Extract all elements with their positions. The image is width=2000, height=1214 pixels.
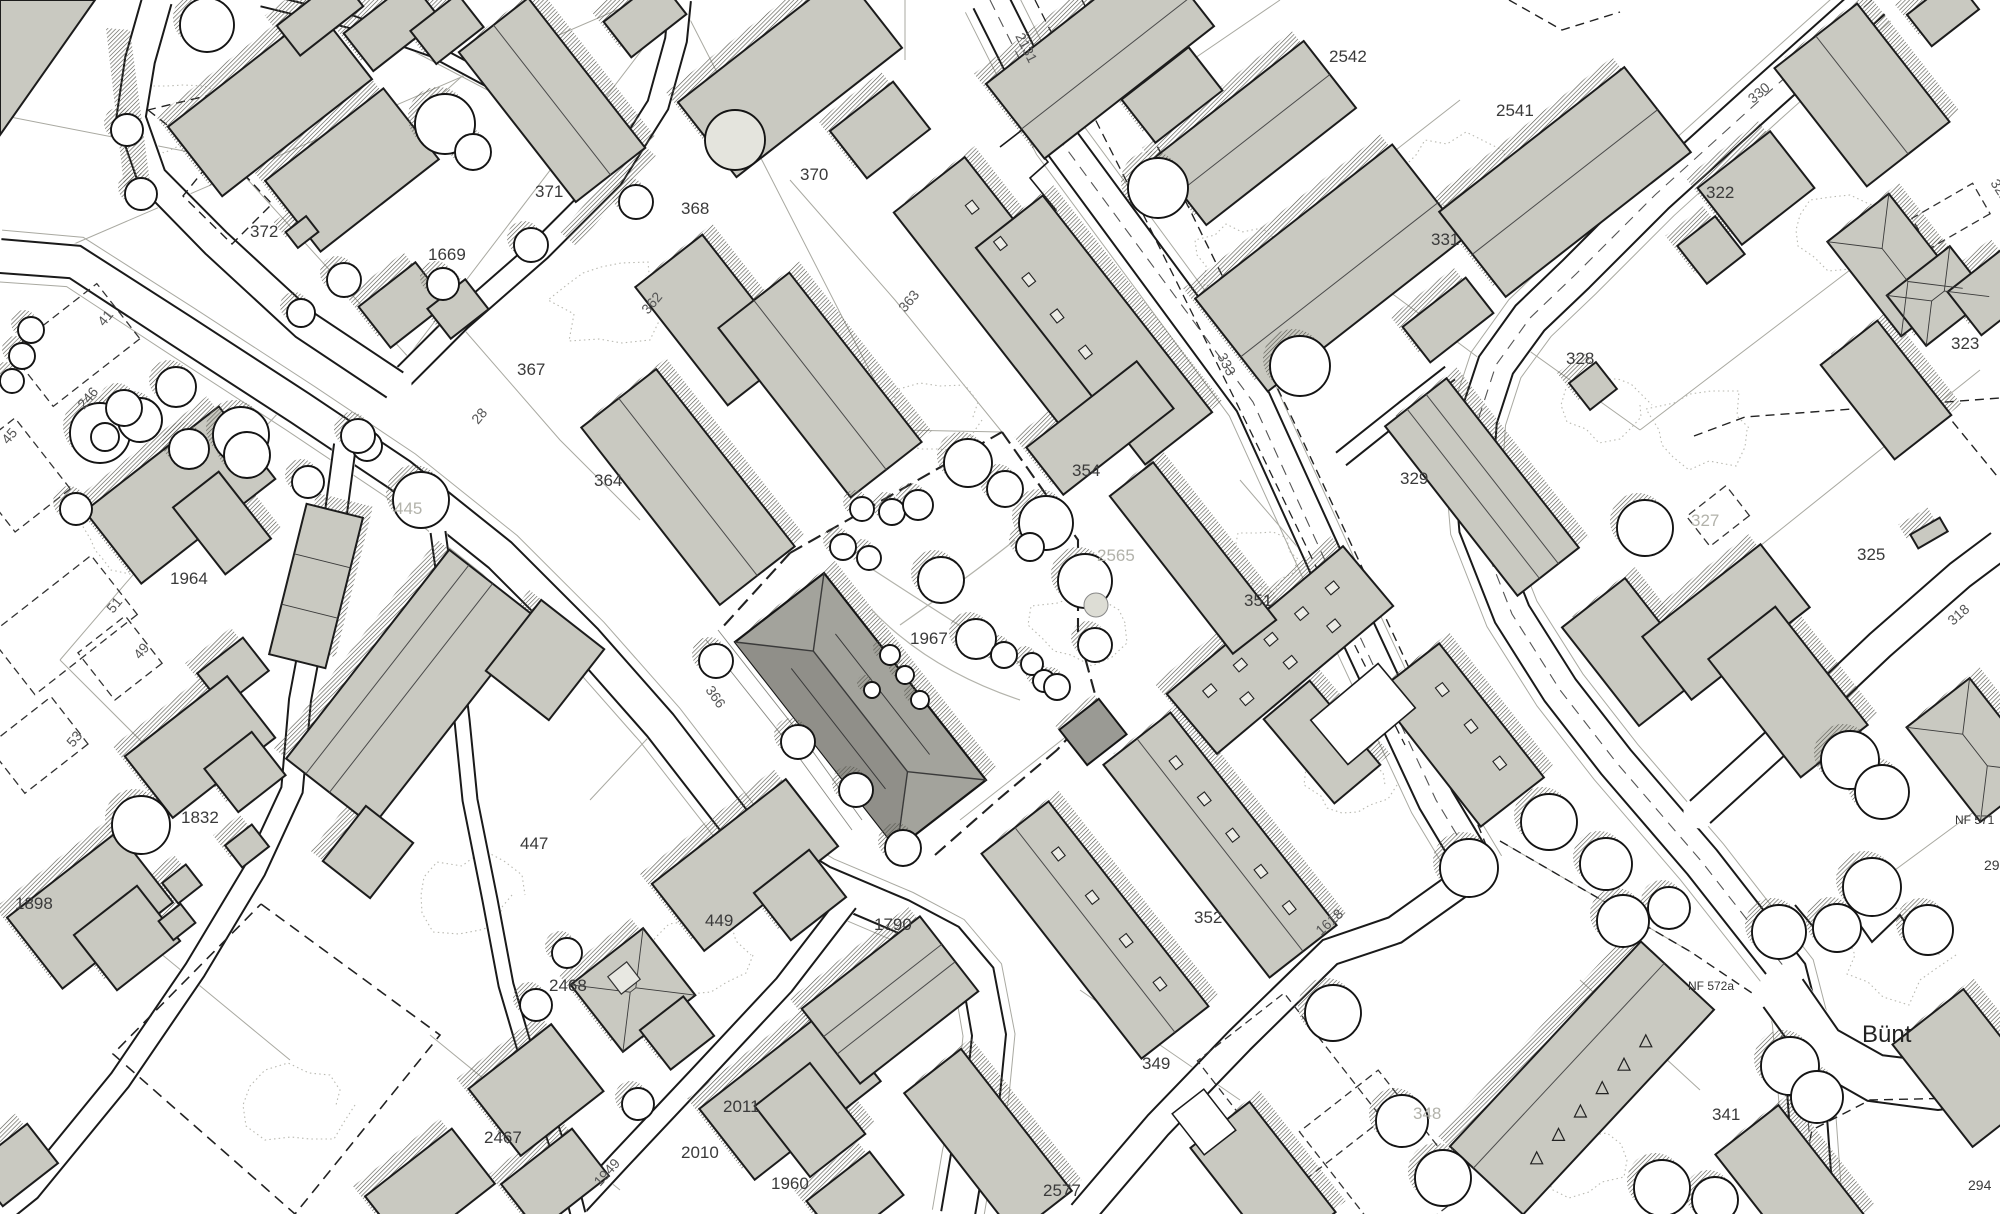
svg-text:1960: 1960 bbox=[771, 1174, 809, 1193]
svg-text:1790: 1790 bbox=[874, 915, 912, 934]
svg-text:354: 354 bbox=[1072, 461, 1100, 480]
svg-text:449: 449 bbox=[705, 911, 733, 930]
svg-text:447: 447 bbox=[520, 834, 548, 853]
svg-text:351: 351 bbox=[1244, 591, 1272, 610]
svg-text:Bünt: Bünt bbox=[1862, 1021, 1912, 1048]
svg-text:2577: 2577 bbox=[1043, 1181, 1081, 1200]
svg-text:1964: 1964 bbox=[170, 569, 208, 588]
svg-text:2010: 2010 bbox=[681, 1143, 719, 1162]
svg-text:352: 352 bbox=[1194, 908, 1222, 927]
svg-text:372: 372 bbox=[250, 222, 278, 241]
svg-text:322: 322 bbox=[1706, 183, 1734, 202]
svg-text:2542: 2542 bbox=[1329, 47, 1367, 66]
svg-text:331: 331 bbox=[1431, 230, 1459, 249]
svg-text:325: 325 bbox=[1857, 545, 1885, 564]
svg-text:NF 571: NF 571 bbox=[1955, 813, 1995, 827]
svg-text:1898: 1898 bbox=[15, 894, 53, 913]
svg-text:29: 29 bbox=[1984, 857, 2000, 873]
svg-text:445: 445 bbox=[394, 499, 422, 518]
svg-text:2541: 2541 bbox=[1496, 101, 1534, 120]
svg-text:348: 348 bbox=[1413, 1104, 1441, 1123]
svg-text:329: 329 bbox=[1400, 469, 1428, 488]
svg-text:2467: 2467 bbox=[484, 1128, 522, 1147]
svg-text:2468: 2468 bbox=[549, 976, 587, 995]
svg-text:349: 349 bbox=[1142, 1054, 1170, 1073]
svg-text:368: 368 bbox=[681, 199, 709, 218]
svg-text:341: 341 bbox=[1712, 1105, 1740, 1124]
svg-text:370: 370 bbox=[800, 165, 828, 184]
svg-text:1832: 1832 bbox=[181, 808, 219, 827]
svg-text:327: 327 bbox=[1691, 511, 1719, 530]
svg-text:364: 364 bbox=[594, 471, 622, 490]
svg-text:NF 572a: NF 572a bbox=[1688, 979, 1734, 993]
svg-text:1669: 1669 bbox=[428, 245, 466, 264]
svg-text:1967: 1967 bbox=[910, 629, 948, 648]
svg-text:2565: 2565 bbox=[1097, 546, 1135, 565]
svg-text:323: 323 bbox=[1951, 334, 1979, 353]
svg-text:371: 371 bbox=[535, 182, 563, 201]
svg-text:2011: 2011 bbox=[723, 1097, 760, 1116]
svg-text:294: 294 bbox=[1968, 1177, 1992, 1193]
svg-text:328: 328 bbox=[1566, 349, 1594, 368]
svg-text:367: 367 bbox=[517, 360, 545, 379]
